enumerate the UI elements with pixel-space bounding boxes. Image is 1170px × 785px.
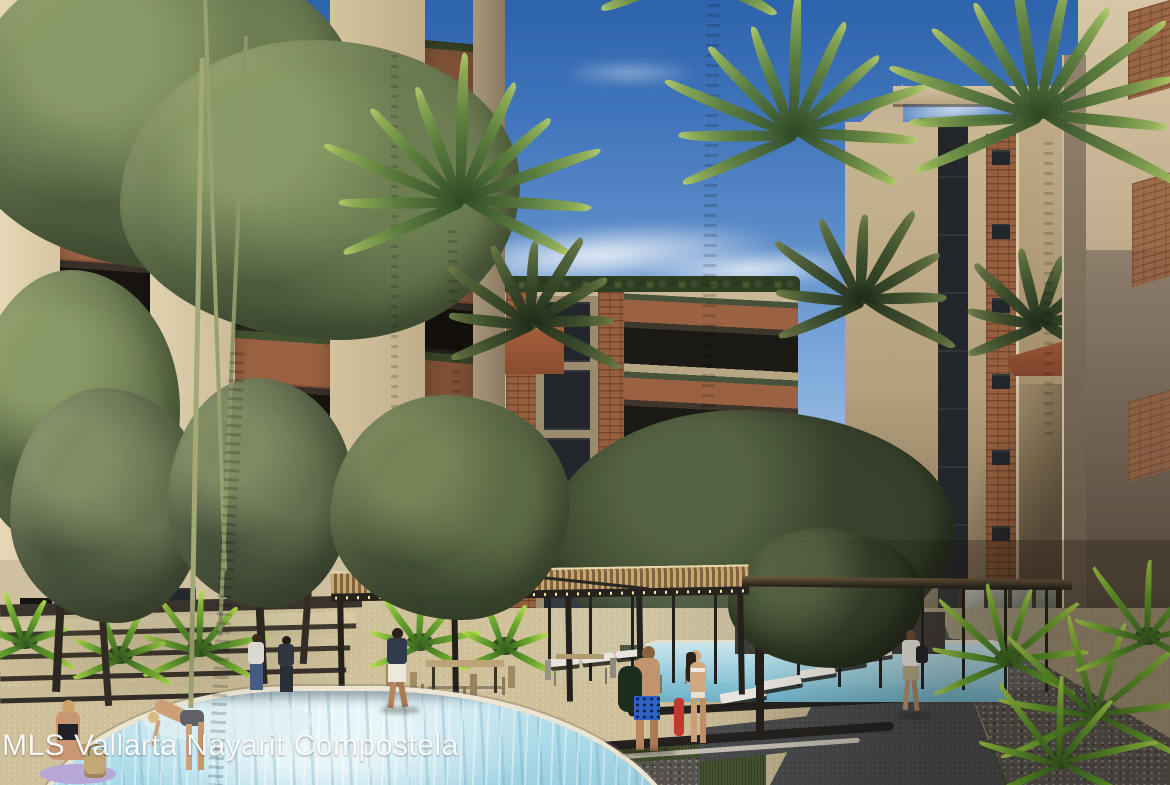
torso [690, 662, 706, 694]
pergola-post [565, 597, 573, 701]
leg [636, 720, 644, 750]
fence-post [962, 586, 965, 690]
person-shadow [896, 712, 932, 719]
dining-table [556, 654, 604, 659]
small-window [992, 224, 1010, 239]
leg [398, 682, 408, 708]
palm-trunk [391, 55, 398, 425]
leg [911, 680, 919, 711]
jeans [250, 664, 263, 690]
white-shorts [388, 664, 406, 682]
leg [650, 720, 658, 751]
leg [387, 682, 397, 709]
architectural-rendering: MLS Vallarta Nayarit Compostela [0, 0, 1170, 785]
navy-shirt [387, 638, 407, 664]
people-walking-pair [246, 634, 306, 700]
person-shadow [380, 706, 420, 714]
shorts [903, 666, 919, 680]
leg [700, 698, 706, 743]
table-leg [494, 667, 497, 693]
watermark-text: MLS Vallarta Nayarit Compostela [2, 729, 459, 763]
palm-trunk [1044, 142, 1053, 442]
tree-trunk [756, 640, 764, 740]
shoulder-bag [916, 646, 928, 663]
person-man-with-towel [618, 646, 678, 754]
swim-trunks [634, 696, 660, 720]
small-window [992, 150, 1010, 165]
dark-jacket [278, 644, 294, 666]
trousers [280, 666, 293, 692]
person-pergola-walker [380, 628, 420, 710]
white-shirt [248, 642, 264, 664]
chair [545, 660, 551, 680]
dining-table [426, 660, 504, 667]
tree-canopy [330, 395, 570, 620]
person-woman-red-towel [676, 650, 716, 750]
brick-balcony-face [1128, 390, 1170, 482]
chair [610, 658, 616, 678]
chair [508, 666, 515, 688]
person-shadow [620, 748, 676, 757]
person-path-walker [894, 630, 934, 716]
bikini-top [691, 668, 705, 672]
brick-balcony-face [1132, 173, 1170, 288]
stair-window [544, 370, 590, 430]
red-towel [674, 698, 684, 736]
leg [903, 680, 911, 710]
leg [691, 698, 697, 742]
pergola-post [737, 594, 745, 694]
palm-frond [1145, 560, 1152, 640]
palm-frond [1057, 675, 1064, 764]
